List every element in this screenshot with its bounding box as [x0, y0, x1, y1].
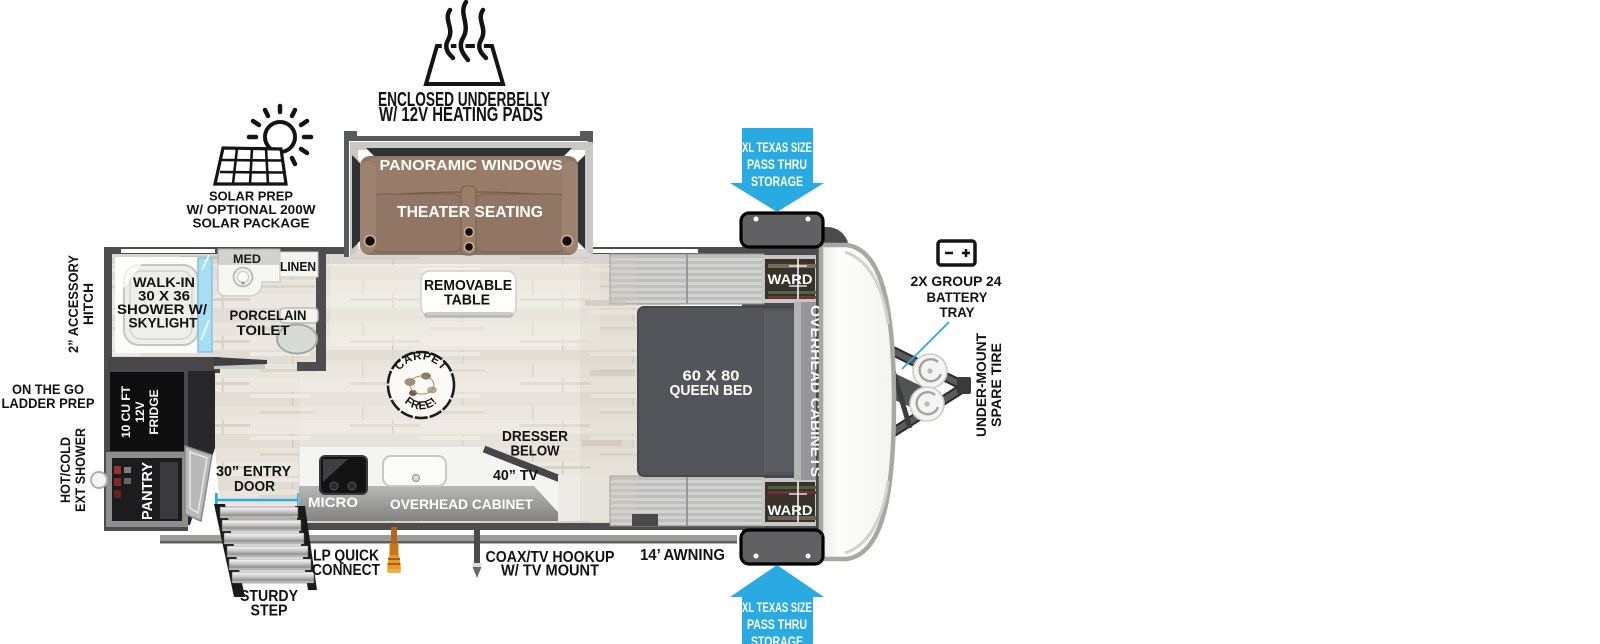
- svg-text:40” TV: 40” TV: [493, 467, 538, 484]
- svg-text:PASS THRU: PASS THRU: [747, 157, 807, 172]
- svg-text:14’ AWNING: 14’ AWNING: [640, 547, 725, 564]
- svg-text:XL TEXAS SIZE: XL TEXAS SIZE: [742, 140, 812, 155]
- svg-text:12V: 12V: [133, 401, 147, 422]
- svg-text:SKYLIGHT: SKYLIGHT: [129, 315, 198, 331]
- svg-text:LADDER PREP: LADDER PREP: [2, 395, 95, 411]
- svg-text:CONNECT: CONNECT: [312, 562, 380, 579]
- svg-text:PANTRY: PANTRY: [139, 462, 156, 520]
- svg-text:PORCELAIN: PORCELAIN: [230, 307, 307, 323]
- svg-text:XL TEXAS SIZE: XL TEXAS SIZE: [742, 600, 812, 615]
- svg-text:STORAGE: STORAGE: [751, 634, 803, 644]
- svg-text:UNDER-MOUNT: UNDER-MOUNT: [973, 333, 989, 437]
- svg-text:PASS THRU: PASS THRU: [747, 617, 807, 632]
- svg-text:WARD: WARD: [768, 502, 813, 518]
- svg-text:TRAY: TRAY: [940, 304, 976, 320]
- svg-text:SPARE TIRE: SPARE TIRE: [988, 343, 1004, 427]
- svg-text:TABLE: TABLE: [444, 292, 490, 309]
- svg-text:30” ENTRY: 30” ENTRY: [216, 464, 291, 480]
- svg-text:STORAGE: STORAGE: [751, 174, 803, 189]
- svg-text:TOILET: TOILET: [237, 322, 290, 338]
- svg-text:QUEEN BED: QUEEN BED: [670, 382, 753, 399]
- svg-text:10 CU FT: 10 CU FT: [119, 385, 133, 438]
- svg-text:2” ACCESSORY: 2” ACCESSORY: [66, 255, 81, 353]
- svg-text:EXT SHOWER: EXT SHOWER: [73, 428, 88, 512]
- svg-text:THEATER SEATING: THEATER SEATING: [397, 204, 543, 221]
- svg-text:MICRO: MICRO: [308, 494, 358, 510]
- svg-text:DOOR: DOOR: [234, 479, 275, 495]
- svg-text:STEP: STEP: [251, 603, 288, 620]
- svg-text:OVERHEAD CABINET: OVERHEAD CABINET: [390, 496, 533, 512]
- svg-text:HITCH: HITCH: [81, 283, 96, 325]
- svg-text:FRIDGE: FRIDGE: [147, 389, 161, 434]
- svg-text:BELOW: BELOW: [511, 443, 561, 460]
- svg-text:PANORAMIC WINDOWS: PANORAMIC WINDOWS: [380, 157, 563, 174]
- svg-text:WARD: WARD: [768, 271, 813, 287]
- svg-text:LINEN: LINEN: [280, 260, 316, 274]
- svg-text:W/ TV MOUNT: W/ TV MOUNT: [501, 563, 599, 580]
- svg-text:BATTERY: BATTERY: [927, 289, 989, 305]
- svg-text:SOLAR PACKAGE: SOLAR PACKAGE: [193, 216, 310, 231]
- svg-text:W/ 12V HEATING PADS: W/ 12V HEATING PADS: [379, 103, 543, 126]
- svg-text:HOT/COLD: HOT/COLD: [58, 437, 73, 503]
- svg-text:2X GROUP 24: 2X GROUP 24: [911, 273, 1002, 289]
